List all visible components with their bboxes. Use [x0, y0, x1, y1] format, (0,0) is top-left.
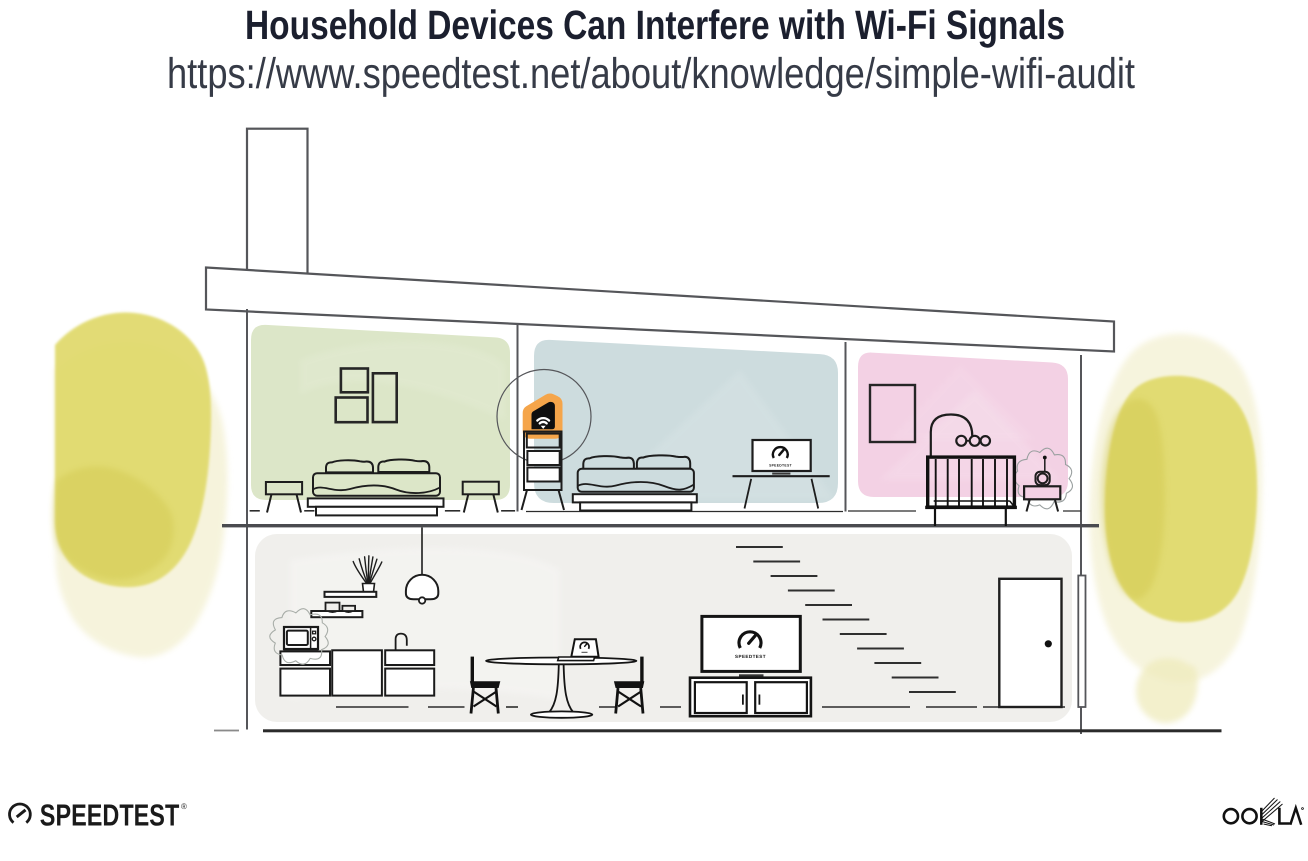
svg-text:https://www.speedtest.net/abou: https://www.speedtest.net/about/knowledg… [167, 50, 1135, 98]
svg-text:®: ® [181, 802, 187, 811]
svg-text:SPEEDTEST: SPEEDTEST [769, 463, 792, 467]
svg-text:SPEEDTEST: SPEEDTEST [735, 654, 766, 659]
svg-text:SPEEDTEST: SPEEDTEST [40, 798, 180, 832]
svg-text:Household Devices Can Interfer: Household Devices Can Interfere with Wi-… [245, 2, 1065, 48]
